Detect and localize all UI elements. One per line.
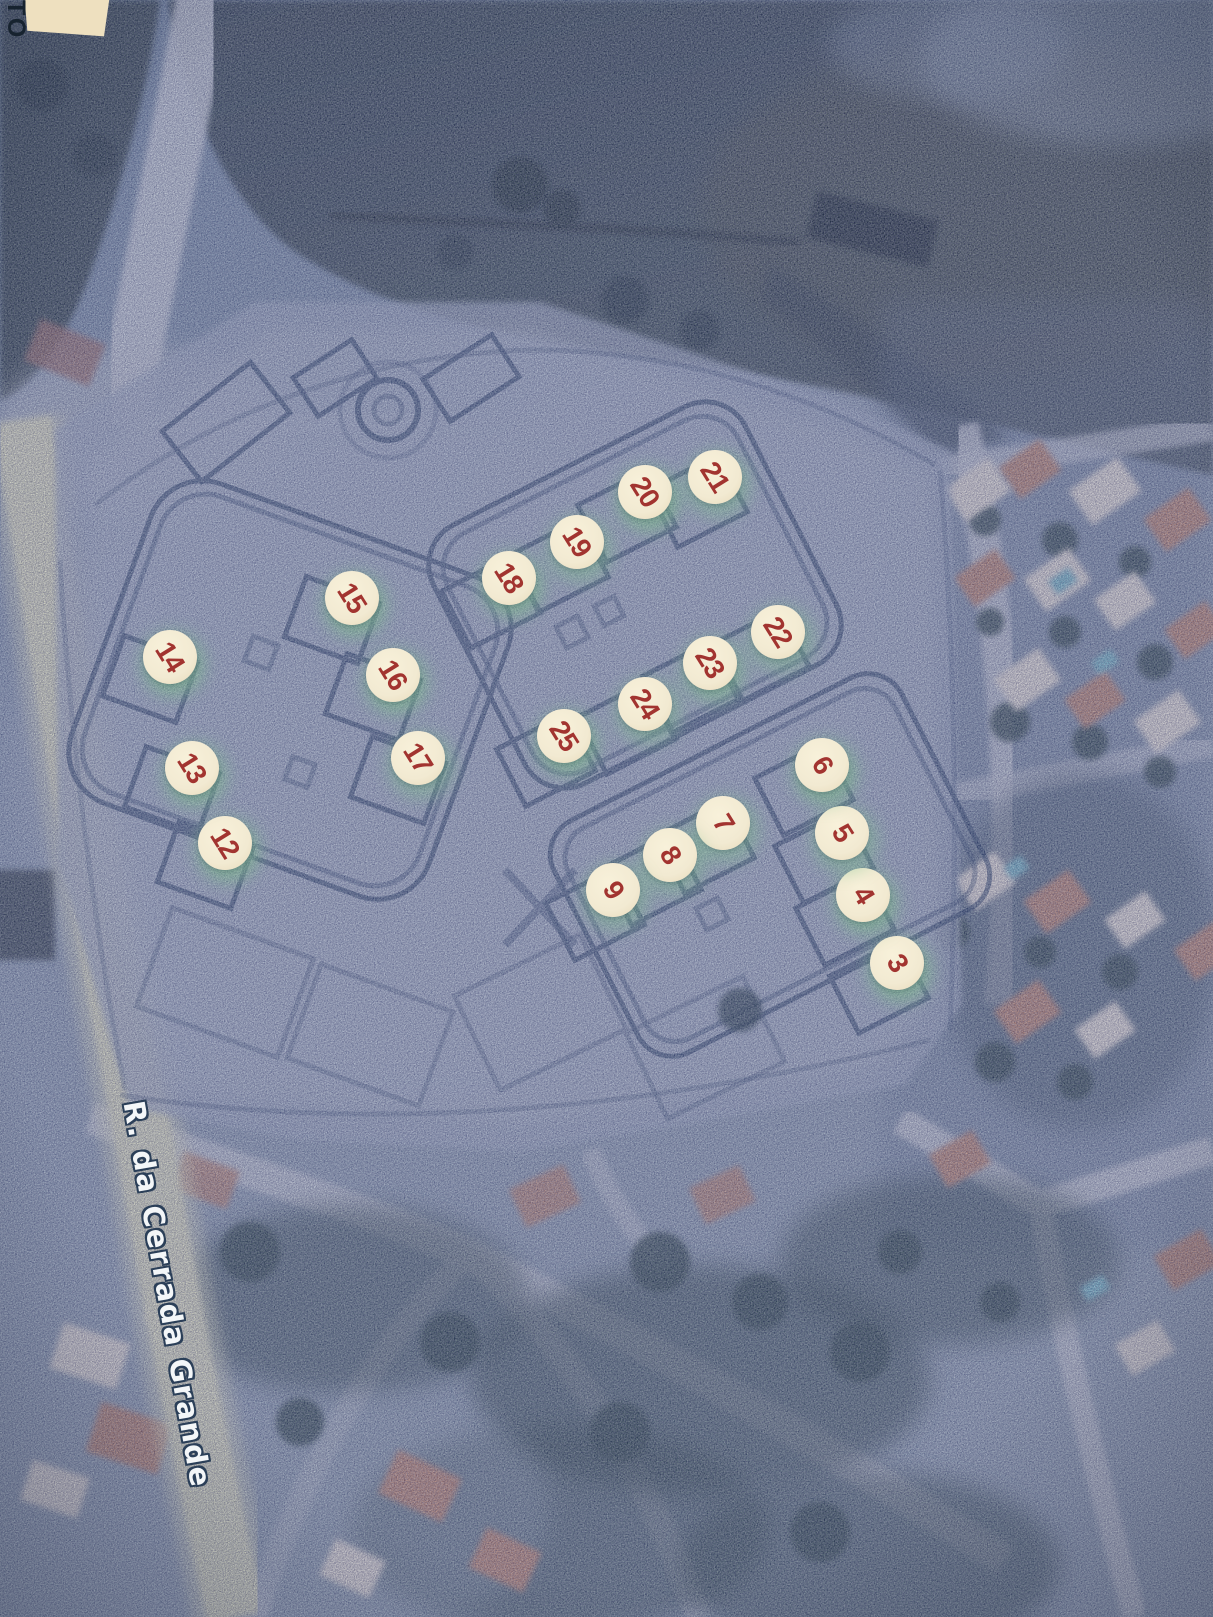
lot-marker-number: 21 — [695, 457, 734, 497]
lot-marker-24: 24 — [618, 677, 672, 731]
lot-marker-6: 6 — [795, 738, 849, 792]
lot-marker-23: 23 — [683, 636, 737, 690]
lot-marker-5: 5 — [815, 806, 869, 860]
lot-marker-number: 22 — [758, 612, 797, 652]
lot-marker-15: 15 — [325, 571, 379, 625]
lot-marker-12: 12 — [198, 816, 252, 870]
lot-marker-number: 15 — [332, 578, 371, 618]
lot-marker-number: 4 — [847, 881, 878, 908]
lot-marker-number: 20 — [625, 472, 664, 512]
lot-marker-13: 13 — [165, 741, 219, 795]
lot-marker-number: 17 — [398, 738, 437, 778]
lot-marker-4: 4 — [836, 868, 890, 922]
lot-marker-16: 16 — [366, 648, 420, 702]
lot-marker-22: 22 — [751, 605, 805, 659]
aerial-lot-map-photo: 34567891213141516171819202122232425 R. d… — [0, 0, 1213, 1617]
lot-marker-number: 6 — [806, 751, 837, 778]
lot-marker-9: 9 — [586, 863, 640, 917]
lot-marker-19: 19 — [550, 515, 604, 569]
lot-marker-number: 16 — [373, 655, 412, 695]
lot-marker-number: 24 — [625, 684, 664, 724]
lot-marker-17: 17 — [391, 731, 445, 785]
lot-marker-number: 14 — [150, 637, 189, 677]
lot-marker-number: 7 — [707, 809, 738, 836]
lot-marker-number: 5 — [826, 819, 857, 846]
lot-marker-number: 13 — [172, 748, 211, 788]
lot-marker-8: 8 — [643, 828, 697, 882]
lot-marker-number: 18 — [489, 558, 528, 598]
lot-marker-18: 18 — [482, 551, 536, 605]
lot-marker-number: 3 — [881, 949, 912, 976]
lot-marker-number: 9 — [597, 876, 628, 903]
lot-marker-3: 3 — [870, 936, 924, 990]
lot-marker-number: 23 — [690, 643, 729, 683]
lot-marker-21: 21 — [688, 450, 742, 504]
lot-marker-number: 19 — [557, 522, 596, 562]
lot-marker-25: 25 — [537, 709, 591, 763]
lot-marker-number: 12 — [205, 823, 244, 863]
lot-marker-20: 20 — [618, 465, 672, 519]
lot-marker-number: 25 — [544, 716, 583, 756]
lot-marker-14: 14 — [143, 630, 197, 684]
lot-marker-number: 8 — [654, 841, 685, 868]
lot-marker-7: 7 — [696, 796, 750, 850]
